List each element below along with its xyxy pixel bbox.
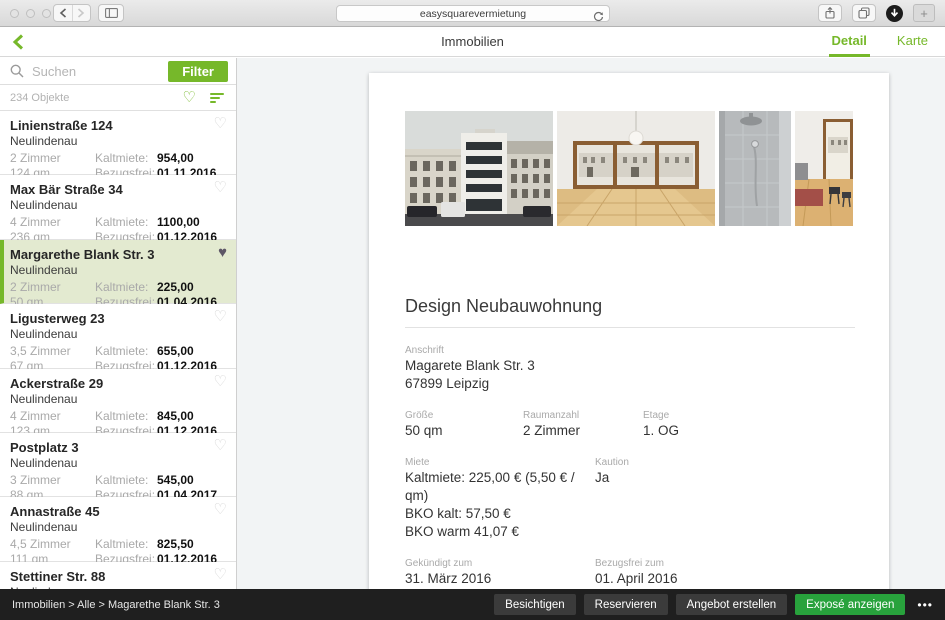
- kaltmiete-label: Kaltmiete:: [95, 151, 157, 166]
- item-rooms: 4 Zimmer: [10, 409, 95, 424]
- miete-line: Kaltmiete: 225,00 € (5,50 € / qm): [405, 469, 595, 505]
- kaltmiete-label: Kaltmiete:: [95, 409, 157, 424]
- anschrift-street: Magarete Blank Str. 3: [405, 357, 855, 375]
- etage-value: 1. OG: [643, 422, 855, 440]
- item-title: Stettiner Str. 88: [10, 569, 226, 585]
- kaltmiete-value: 1100,00: [157, 215, 226, 230]
- kaltmiete-value: 225,00: [157, 280, 226, 295]
- list-item[interactable]: ♡ Postplatz 3 Neulindenau 3 Zimmer Kaltm…: [0, 433, 236, 497]
- favorite-icon[interactable]: ♡: [214, 116, 227, 131]
- download-icon: [890, 8, 899, 18]
- item-rooms: 4 Zimmer: [10, 215, 95, 230]
- filter-button[interactable]: Filter: [168, 61, 228, 82]
- downloads-button[interactable]: [886, 5, 903, 22]
- kaution-value: Ja: [595, 469, 855, 487]
- tabs-icon: [858, 7, 870, 19]
- divider: [405, 327, 855, 328]
- photo-shower[interactable]: [719, 111, 791, 226]
- traffic-lights: [10, 9, 51, 18]
- list-item[interactable]: ♡ Annastraße 45 Neulindenau 4,5 Zimmer K…: [0, 497, 236, 561]
- kaltmiete-value: 655,00: [157, 344, 226, 359]
- item-title: Margarethe Blank Str. 3: [10, 247, 226, 263]
- expose-anzeigen-button[interactable]: Exposé anzeigen: [795, 594, 905, 615]
- item-rooms: 4,5 Zimmer: [10, 537, 95, 552]
- anschrift-label: Anschrift: [405, 344, 855, 357]
- miete-section: Miete Kaltmiete: 225,00 € (5,50 € / qm) …: [405, 456, 855, 541]
- bezugsfrei-zum-label: Bezugsfrei zum: [595, 557, 855, 570]
- search-input[interactable]: [32, 64, 142, 79]
- url-text: easysquarevermietung: [420, 8, 526, 20]
- list-item[interactable]: ♡ Ligusterweg 23 Neulindenau 3,5 Zimmer …: [0, 304, 236, 368]
- item-title: Linienstraße 124: [10, 118, 226, 134]
- result-count-row: 234 Objekte ♡: [0, 85, 236, 111]
- item-district: Neulindenau: [10, 263, 226, 278]
- close-button[interactable]: [10, 9, 19, 18]
- breadcrumb: Immobilien > Alle > Magarethe Blank Str.…: [12, 599, 486, 611]
- raumanzahl-label: Raumanzahl: [523, 409, 643, 422]
- app-window: easysquarevermietung + Immobilien Detail: [0, 0, 945, 620]
- item-title: Max Bär Straße 34: [10, 182, 226, 198]
- kaltmiete-label: Kaltmiete:: [95, 537, 157, 552]
- bezugsfrei-zum-value: 01. April 2016: [595, 570, 855, 588]
- property-list-sidebar: Filter 234 Objekte ♡ ♡ Linienstraße 124 …: [0, 58, 237, 589]
- favorites-filter-icon[interactable]: ♡: [183, 90, 196, 105]
- nav-buttons: [53, 4, 91, 22]
- more-actions-button[interactable]: •••: [917, 598, 933, 612]
- kaltmiete-value: 825,50: [157, 537, 226, 552]
- chevron-right-icon: [77, 8, 85, 18]
- property-list: ♡ Linienstraße 124 Neulindenau 2 Zimmer …: [0, 111, 236, 589]
- photo-building-exterior[interactable]: [405, 111, 553, 226]
- anschrift-section: Anschrift Magarete Blank Str. 3 67899 Le…: [405, 344, 855, 393]
- miete-line: BKO warm 41,07 €: [405, 523, 595, 541]
- sort-icon[interactable]: [210, 93, 224, 103]
- page-title: Immobilien: [0, 27, 945, 56]
- groesse-label: Größe: [405, 409, 523, 422]
- share-icon: [825, 7, 835, 19]
- chrome-right-icons: +: [818, 4, 935, 22]
- item-district: Neulindenau: [10, 520, 226, 535]
- photo-gallery: [405, 111, 855, 226]
- result-count: 234 Objekte: [10, 92, 69, 104]
- list-item[interactable]: ♡ Max Bär Straße 34 Neulindenau 4 Zimmer…: [0, 175, 236, 239]
- favorite-icon[interactable]: ♡: [214, 309, 227, 324]
- miete-label: Miete: [405, 456, 595, 469]
- property-title: Design Neubauwohnung: [405, 296, 855, 317]
- dates-section: Gekündigt zum 31. März 2016 Bezugsfrei z…: [405, 557, 855, 588]
- kaltmiete-label: Kaltmiete:: [95, 280, 157, 295]
- sidebar-icon: [105, 8, 118, 18]
- kaltmiete-value: 545,00: [157, 473, 226, 488]
- photo-furnished-room[interactable]: [795, 111, 853, 226]
- view-tabs: Detail Karte: [829, 27, 931, 57]
- minimize-button[interactable]: [26, 9, 35, 18]
- kaltmiete-value: 954,00: [157, 151, 226, 166]
- reservieren-button[interactable]: Reservieren: [584, 594, 668, 615]
- url-bar[interactable]: easysquarevermietung: [336, 5, 610, 22]
- list-item[interactable]: ♡ Stettiner Str. 88 Neulindenau: [0, 562, 236, 589]
- property-detail-card: Design Neubauwohnung Anschrift Magarete …: [369, 73, 889, 589]
- search-row: Filter: [0, 58, 236, 85]
- chevron-left-icon: [59, 8, 67, 18]
- favorite-icon[interactable]: ♡: [214, 374, 227, 389]
- besichtigen-button[interactable]: Besichtigen: [494, 594, 575, 615]
- groesse-value: 50 qm: [405, 422, 523, 440]
- kaltmiete-label: Kaltmiete:: [95, 473, 157, 488]
- back-button[interactable]: [54, 5, 72, 21]
- item-title: Annastraße 45: [10, 504, 226, 520]
- back-chevron-icon[interactable]: [12, 34, 24, 55]
- item-rooms: 3,5 Zimmer: [10, 344, 95, 359]
- detail-panel: Design Neubauwohnung Anschrift Magarete …: [237, 58, 945, 589]
- list-item-selected[interactable]: ♥ Margarethe Blank Str. 3 Neulindenau 2 …: [0, 240, 236, 304]
- favorite-icon[interactable]: ♡: [214, 438, 227, 453]
- favorite-icon[interactable]: ♡: [214, 180, 227, 195]
- tab-detail[interactable]: Detail: [829, 27, 870, 57]
- item-rooms: 2 Zimmer: [10, 151, 95, 166]
- favorite-icon-filled[interactable]: ♥: [218, 245, 227, 260]
- item-rooms: 3 Zimmer: [10, 473, 95, 488]
- tab-karte[interactable]: Karte: [894, 27, 931, 57]
- refresh-icon[interactable]: [593, 9, 604, 27]
- sidebar-toggle-button[interactable]: [98, 4, 124, 22]
- anschrift-city: 67899 Leipzig: [405, 375, 855, 393]
- app-header: Immobilien Detail Karte: [0, 27, 945, 57]
- item-title: Ligusterweg 23: [10, 311, 226, 327]
- photo-empty-living-room[interactable]: [557, 111, 715, 226]
- forward-button[interactable]: [72, 5, 91, 21]
- zoom-button[interactable]: [42, 9, 51, 18]
- item-district: Neulindenau: [10, 327, 226, 342]
- item-title: Postplatz 3: [10, 440, 226, 456]
- item-district: Neulindenau: [10, 456, 226, 471]
- favorite-icon[interactable]: ♡: [214, 567, 227, 582]
- gekuendigt-label: Gekündigt zum: [405, 557, 595, 570]
- favorite-icon[interactable]: ♡: [214, 502, 227, 517]
- gekuendigt-value: 31. März 2016: [405, 570, 595, 588]
- size-section: Größe 50 qm Raumanzahl 2 Zimmer Etage 1.…: [405, 409, 855, 440]
- item-district: Neulindenau: [10, 134, 226, 149]
- item-district: Neulindenau: [10, 198, 226, 213]
- tab-overview-button[interactable]: [852, 4, 876, 22]
- new-tab-button[interactable]: +: [913, 4, 935, 22]
- kaltmiete-value: 845,00: [157, 409, 226, 424]
- kaution-label: Kaution: [595, 456, 855, 469]
- share-button[interactable]: [818, 4, 842, 22]
- bottom-action-bar: Immobilien > Alle > Magarethe Blank Str.…: [0, 589, 945, 620]
- raumanzahl-value: 2 Zimmer: [523, 422, 643, 440]
- item-title: Ackerstraße 29: [10, 376, 226, 392]
- list-item[interactable]: ♡ Ackerstraße 29 Neulindenau 4 Zimmer Ka…: [0, 369, 236, 433]
- miete-line: BKO kalt: 57,50 €: [405, 505, 595, 523]
- item-rooms: 2 Zimmer: [10, 280, 95, 295]
- angebot-erstellen-button[interactable]: Angebot erstellen: [676, 594, 788, 615]
- etage-label: Etage: [643, 409, 855, 422]
- kaltmiete-label: Kaltmiete:: [95, 344, 157, 359]
- browser-chrome: easysquarevermietung +: [0, 0, 945, 27]
- content-area: Filter 234 Objekte ♡ ♡ Linienstraße 124 …: [0, 58, 945, 589]
- item-district: Neulindenau: [10, 392, 226, 407]
- list-item[interactable]: ♡ Linienstraße 124 Neulindenau 2 Zimmer …: [0, 111, 236, 175]
- kaltmiete-label: Kaltmiete:: [95, 215, 157, 230]
- search-icon: [10, 64, 24, 78]
